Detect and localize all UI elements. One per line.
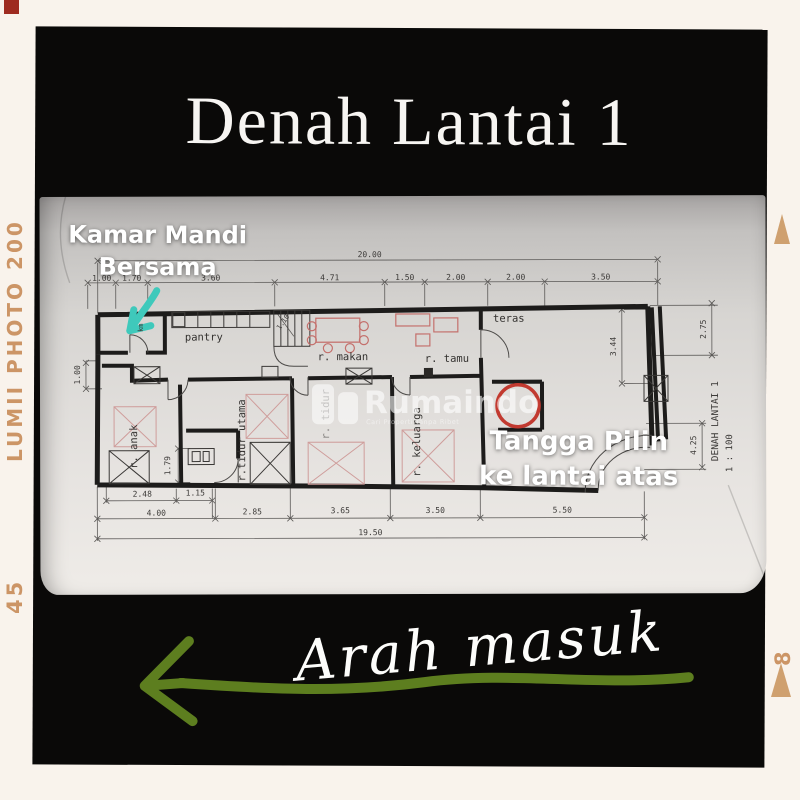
- bathroom-annotation-line1: Kamar Mandi: [55, 218, 261, 251]
- film-frame-number-left: 45: [3, 564, 27, 614]
- svg-text:r. makan: r. makan: [318, 351, 369, 363]
- bathroom-annotation-line2: Bersama: [54, 251, 260, 284]
- svg-text:1.50: 1.50: [395, 273, 414, 282]
- svg-text:4.00: 4.00: [147, 509, 166, 518]
- svg-text:DENAH LANTAI 1: DENAH LANTAI 1: [710, 381, 721, 461]
- toilet-fixture: [188, 449, 214, 465]
- svg-text:19.50: 19.50: [358, 528, 382, 537]
- watermark-logo-icon: [338, 392, 358, 424]
- svg-text:pantry: pantry: [185, 331, 223, 343]
- svg-text:2.00: 2.00: [446, 273, 465, 282]
- svg-text:5.50: 5.50: [553, 506, 572, 515]
- svg-text:r. anak: r. anak: [128, 424, 140, 469]
- film-arrow-icon-top: [774, 214, 790, 244]
- svg-text:3.44: 3.44: [609, 337, 618, 356]
- svg-text:2.75: 2.75: [699, 319, 708, 338]
- page-title: Denah Lantai 1: [35, 80, 767, 162]
- film-brand-label: LUMII PHOTO 200: [3, 202, 27, 462]
- svg-text:Cari Properti Tanpa Ribet: Cari Properti Tanpa Ribet: [366, 418, 459, 426]
- svg-text:Rumaindo: Rumaindo: [364, 385, 539, 421]
- film-arrow-icon-bottom: [771, 663, 791, 697]
- bathroom-annotation: Kamar Mandi Bersama: [54, 218, 260, 283]
- svg-text:1.10: 1.10: [275, 313, 291, 331]
- svg-text:teras: teras: [493, 313, 525, 325]
- svg-text:2.85: 2.85: [243, 507, 262, 516]
- svg-text:4.25: 4.25: [689, 435, 698, 454]
- photo-frame: Denah Lantai 1: [32, 26, 767, 767]
- spiral-stairs-annotation: Tangga Pilin ke lantai atas: [468, 424, 690, 495]
- svg-text:1.15: 1.15: [186, 489, 205, 498]
- film-marker-red: [4, 0, 19, 14]
- watermark-logo-icon: [312, 384, 334, 424]
- svg-text:3.50: 3.50: [426, 506, 445, 515]
- film-frame-number-right: 8: [771, 632, 795, 666]
- svg-text:2.48: 2.48: [133, 490, 152, 499]
- svg-text:3.65: 3.65: [331, 506, 350, 515]
- svg-text:4.71: 4.71: [320, 273, 339, 282]
- svg-text:2.00: 2.00: [506, 273, 525, 282]
- watermark: Rumaindo Cari Properti Tanpa Ribet: [312, 384, 539, 427]
- svg-text:20.00: 20.00: [358, 250, 382, 259]
- svg-text:3.50: 3.50: [591, 272, 610, 281]
- svg-text:r. tamu: r. tamu: [425, 353, 469, 365]
- svg-text:1.79: 1.79: [163, 456, 172, 475]
- stairs: [274, 310, 310, 366]
- stairs-annotation-line2: ke lantai atas: [468, 459, 690, 495]
- svg-text:1 : 100: 1 : 100: [725, 434, 735, 472]
- svg-text:r.tidur utama: r.tidur utama: [236, 399, 248, 481]
- stairs-annotation-line1: Tangga Pilin: [468, 424, 690, 460]
- svg-text:km: km: [137, 323, 145, 331]
- svg-text:1.00: 1.00: [73, 365, 82, 384]
